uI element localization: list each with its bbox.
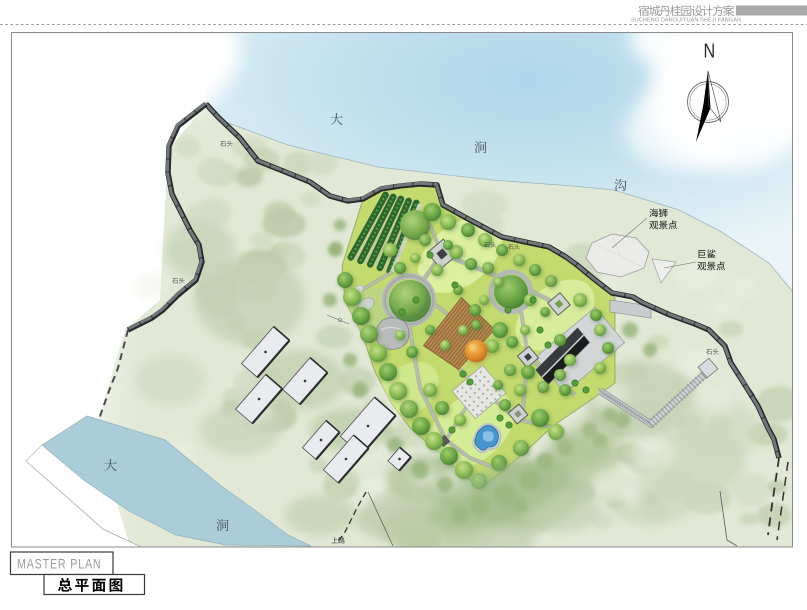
svg-text:N: N: [704, 39, 716, 62]
svg-text:SUCHENG DANGUIYUAN SHEJI FANGA: SUCHENG DANGUIYUAN SHEJI FANGAN: [631, 18, 741, 24]
svg-text:MASTER PLAN: MASTER PLAN: [17, 556, 101, 572]
